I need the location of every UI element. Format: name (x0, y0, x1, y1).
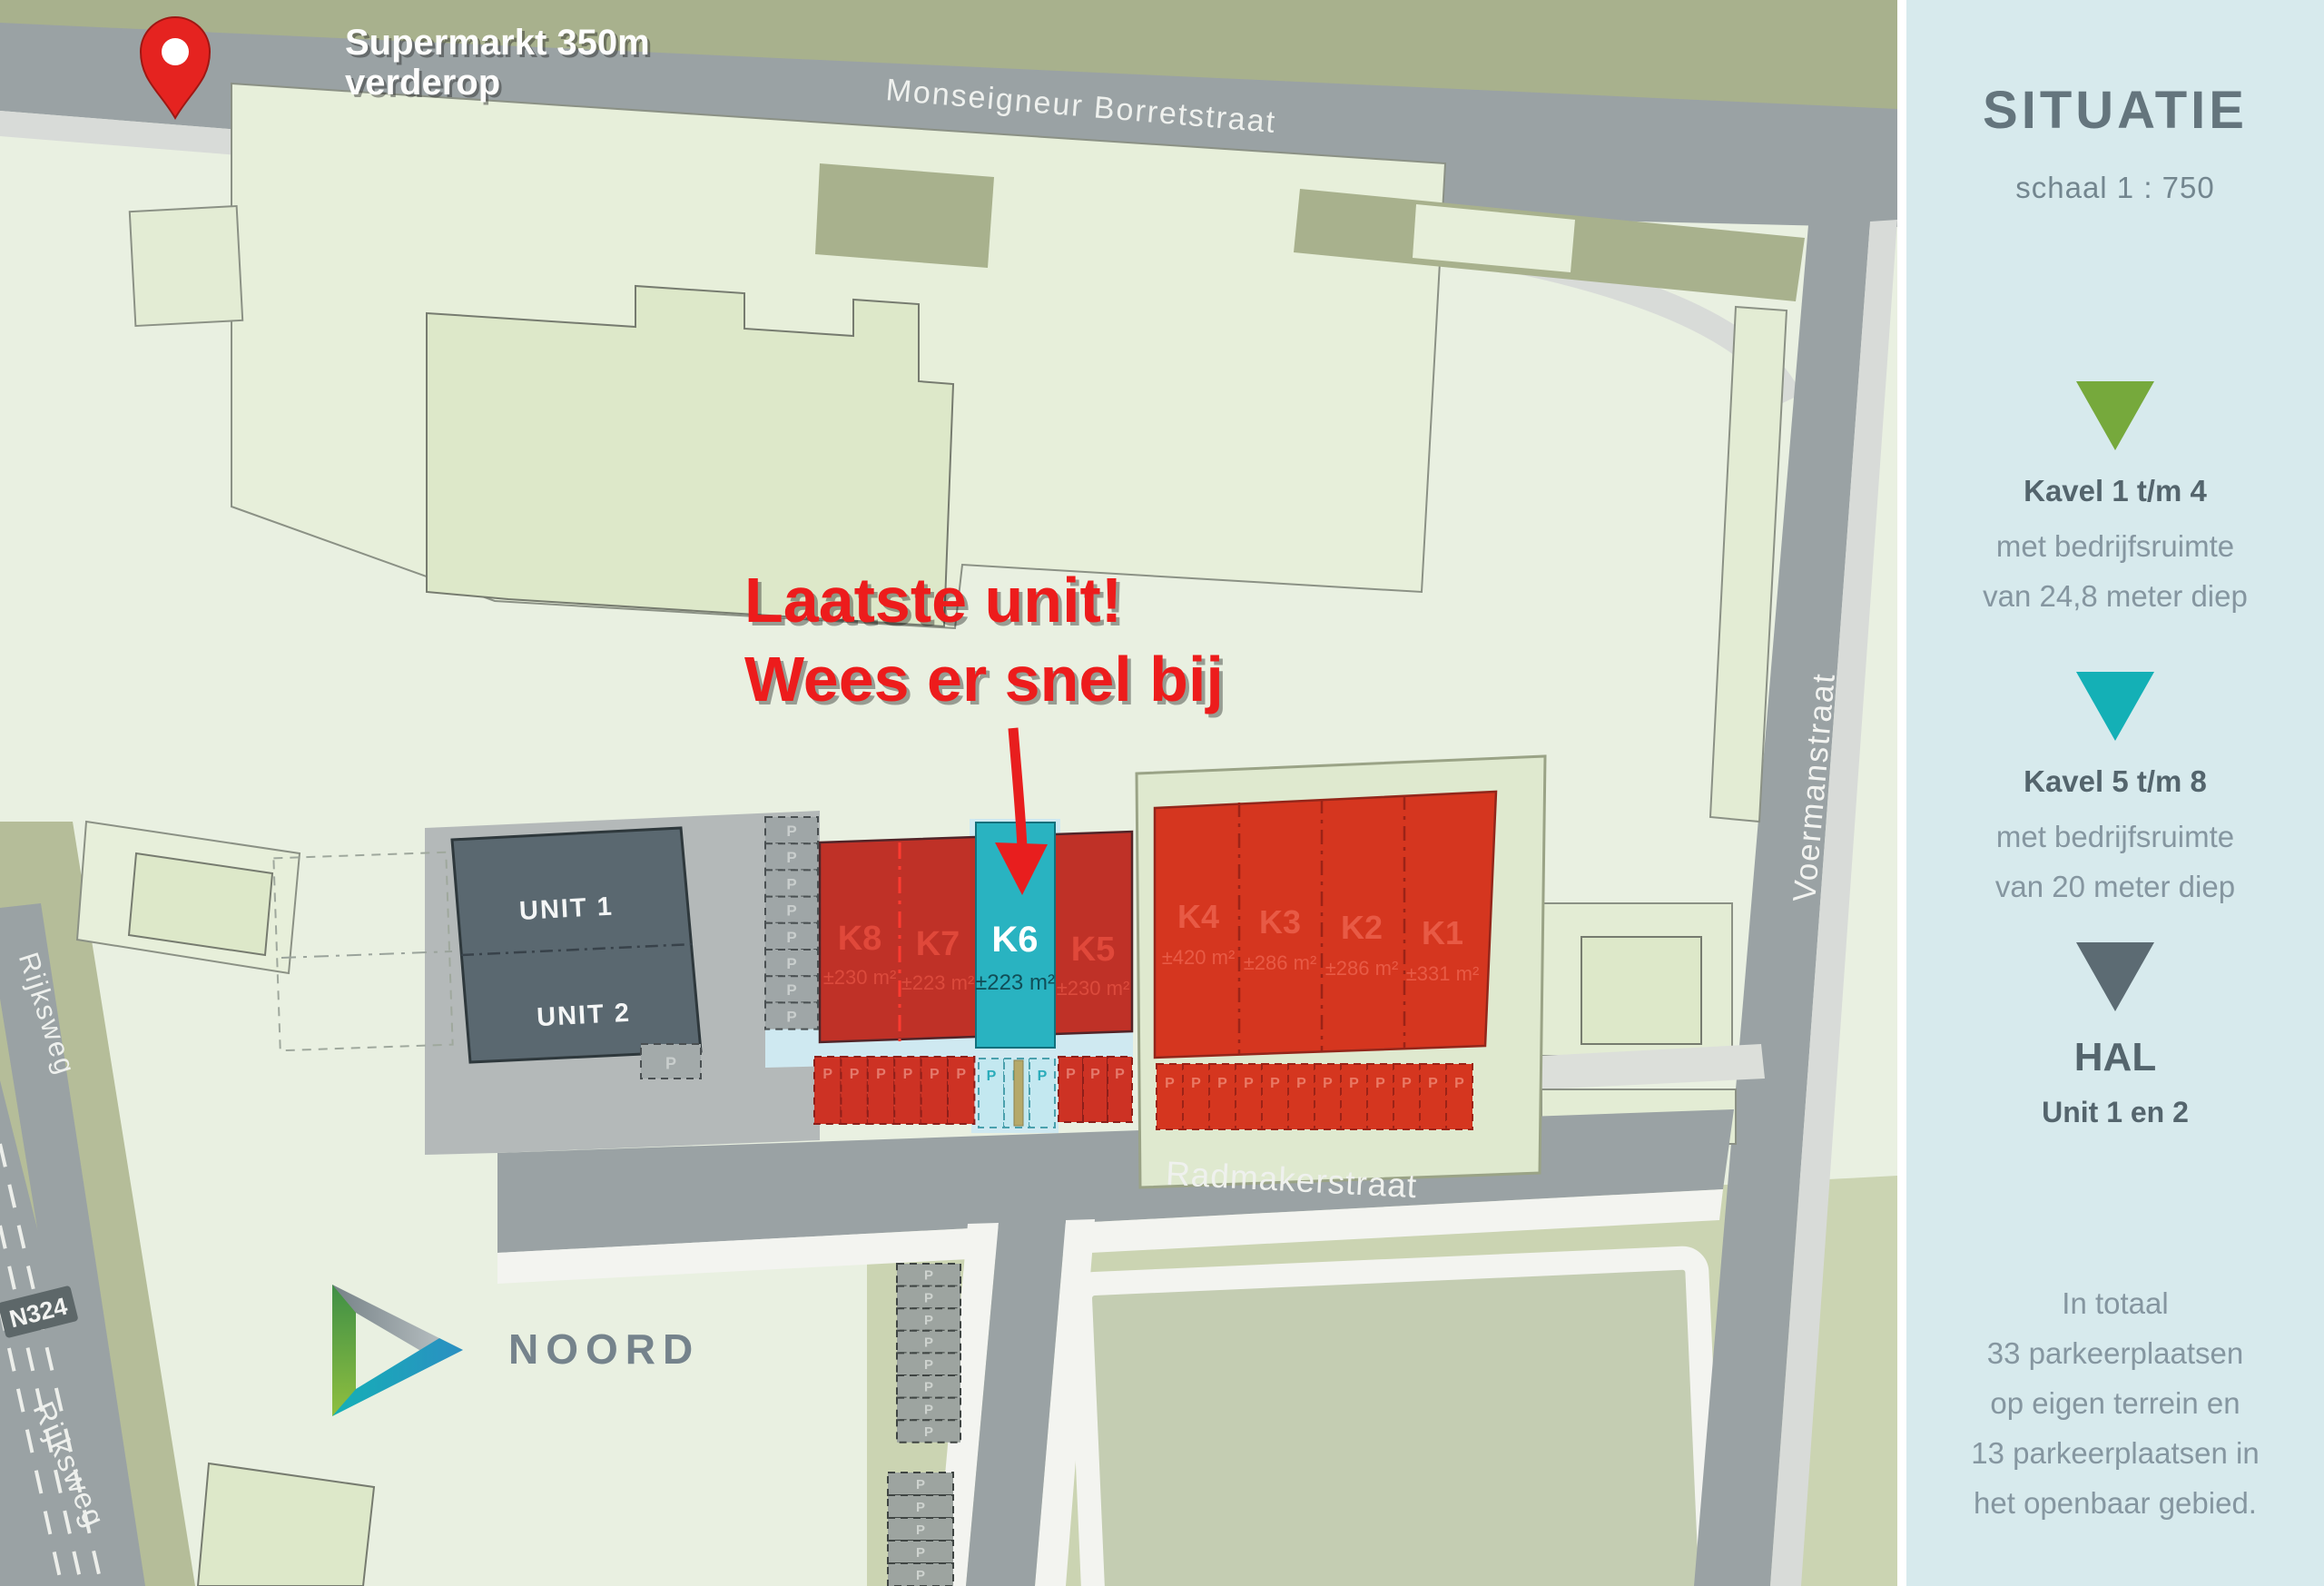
kavel-k7-area: ±223 m² (901, 971, 975, 994)
parking-space (1262, 1064, 1288, 1129)
parking-letter: P (1038, 1069, 1048, 1084)
parking-space (1446, 1064, 1472, 1129)
parking-letter: P (876, 1067, 886, 1082)
kavel-k2-label: K2 (1341, 909, 1383, 946)
kavel-k3-label: K3 (1259, 903, 1301, 941)
noord-logo-text: NOORD (508, 1325, 700, 1373)
parking-letter: P (903, 1067, 913, 1082)
parking-letter: P (916, 1545, 925, 1561)
parking-letter: P (822, 1067, 832, 1082)
parking-space (1315, 1064, 1341, 1129)
pin-label-line1: Supermarkt 350m (345, 23, 650, 63)
parking-space (1236, 1064, 1262, 1129)
parking-space (1209, 1064, 1236, 1129)
legend-line: van 20 meter diep (1906, 862, 2324, 911)
legend-line: van 24,8 meter diep (1906, 571, 2324, 621)
parking-letter: P (786, 955, 796, 972)
parking-letter: P (1165, 1076, 1175, 1091)
planter-strip (1014, 1060, 1023, 1126)
kavel-k4-area: ±420 m² (1162, 946, 1236, 969)
parking-letter: P (924, 1313, 933, 1328)
parking-letter: P (1349, 1076, 1359, 1091)
kavel-k1-label: K1 (1422, 914, 1463, 951)
parking-space (1157, 1064, 1183, 1129)
verge-block-mid (815, 163, 994, 268)
parking-letter: P (1244, 1076, 1254, 1091)
parking-summary-line: op eigen terrein en (1906, 1378, 2324, 1428)
parking-letter: P (786, 929, 796, 946)
legend-sidebar: SITUATIE schaal 1 : 750 Kavel 1 t/m 4 me… (1906, 0, 2324, 1586)
kavel-k7-label: K7 (916, 925, 960, 963)
kavel-k4-label: K4 (1177, 898, 1219, 935)
site-map: N324 Rijksweg Rijksweg UNIT 1 UNIT 2 K8 … (0, 0, 1897, 1586)
parking-summary-line: het openbaar gebied. (1906, 1478, 2324, 1528)
parking-space (1393, 1064, 1420, 1129)
triangle-gray-icon (2076, 942, 2154, 1011)
parking-letter: P (786, 875, 796, 892)
parking-space (1420, 1064, 1446, 1129)
kavel-k6-area: ±223 m² (975, 970, 1055, 995)
parking-letter: P (956, 1067, 966, 1082)
legend-hal: HAL Unit 1 en 2 (1906, 942, 2324, 1138)
parcel-southeast (1079, 1257, 1712, 1586)
kavel-k5-label: K5 (1071, 931, 1116, 969)
parking-space (1183, 1064, 1209, 1129)
parking-letter: P (786, 902, 796, 920)
kavel-k1-area: ±331 m² (1406, 962, 1480, 985)
parking-letter: P (786, 1008, 796, 1025)
building-topleft (130, 206, 242, 326)
legend-line: met bedrijfsruimte (1906, 812, 2324, 862)
parking-letter: P (786, 849, 796, 866)
unit2-label: UNIT 2 (536, 999, 631, 1032)
parking-letter: P (924, 1357, 933, 1373)
sidebar-scale: schaal 1 : 750 (1906, 171, 2324, 205)
kavel-k2-area: ±286 m² (1325, 957, 1399, 980)
parking-letter: P (916, 1568, 925, 1583)
legend-kavel-5-8: Kavel 5 t/m 8 met bedrijfsruimte van 20 … (1906, 672, 2324, 911)
parking-letter: P (987, 1069, 997, 1084)
parking-letter: P (924, 1268, 933, 1284)
parking-letter: P (1115, 1067, 1125, 1082)
annotation-line1: Laatste unit! (744, 565, 1122, 635)
parking-letter: P (916, 1500, 925, 1515)
location-pin-hole (162, 38, 189, 65)
parking-space (1341, 1064, 1367, 1129)
kavel-k8-area: ±230 m² (823, 966, 897, 989)
legend-title: Kavel 1 t/m 4 (1906, 474, 2324, 508)
parking-letter: P (1066, 1067, 1076, 1082)
legend-kavel-1-4: Kavel 1 t/m 4 met bedrijfsruimte van 24,… (1906, 381, 2324, 621)
triangle-green-icon (2076, 381, 2154, 450)
parking-space (1288, 1064, 1315, 1129)
legend-title: Kavel 5 t/m 8 (1906, 764, 2324, 799)
parking-summary-line: 33 parkeerplaatsen (1906, 1328, 2324, 1378)
parking-letter: P (1402, 1076, 1412, 1091)
parking-letter: P (930, 1067, 940, 1082)
parking-letter: P (786, 823, 796, 840)
parking-letter: P (924, 1290, 933, 1305)
parking-letter: P (1454, 1076, 1464, 1091)
parking-letter: P (916, 1522, 925, 1538)
parking-letter: P (1191, 1076, 1201, 1091)
legend-line: met bedrijfsruimte (1906, 521, 2324, 571)
parking-letter: P (1270, 1076, 1280, 1091)
parking-letter: P (1375, 1076, 1385, 1091)
sidebar-title: SITUATIE (1906, 80, 2324, 141)
triangle-teal-icon (2076, 672, 2154, 741)
kavel-k3-area: ±286 m² (1244, 951, 1317, 974)
parking-letter: P (1217, 1076, 1227, 1091)
parking-letter: P (1428, 1076, 1438, 1091)
pin-label-line2: verderop (345, 63, 500, 103)
situatie-page: N324 Rijksweg Rijksweg UNIT 1 UNIT 2 K8 … (0, 0, 2324, 1586)
kavel-k5-area: ±230 m² (1057, 977, 1130, 1000)
annotation-line2: Wees er snel bij (744, 644, 1224, 714)
parking-letter: P (786, 981, 796, 999)
legend-line: Unit 1 en 2 (1906, 1088, 2324, 1138)
parking-space (1367, 1064, 1393, 1129)
parking-letter: P (916, 1477, 925, 1492)
kavel-k8-label: K8 (838, 920, 882, 958)
parking-letter: P (1090, 1067, 1100, 1082)
parking-summary-line: In totaal (1906, 1278, 2324, 1328)
parking-letter: P (924, 1380, 933, 1395)
legend-title: HAL (1906, 1035, 2324, 1080)
unit1-label: UNIT 1 (518, 892, 614, 926)
parking-letter: P (1323, 1076, 1333, 1091)
parking-letter: P (850, 1067, 860, 1082)
parking-letter: P (1296, 1076, 1306, 1091)
parking-letter: P (665, 1054, 676, 1072)
kavel-k6-label: K6 (991, 920, 1038, 960)
parking-summary-line: 13 parkeerplaatsen in (1906, 1428, 2324, 1478)
parking-letter: P (924, 1402, 933, 1417)
parking-letter: P (924, 1335, 933, 1351)
parking-summary: In totaal 33 parkeerplaatsen op eigen te… (1906, 1278, 2324, 1528)
building-east-mid (1581, 937, 1701, 1044)
parking-letter: P (924, 1424, 933, 1440)
